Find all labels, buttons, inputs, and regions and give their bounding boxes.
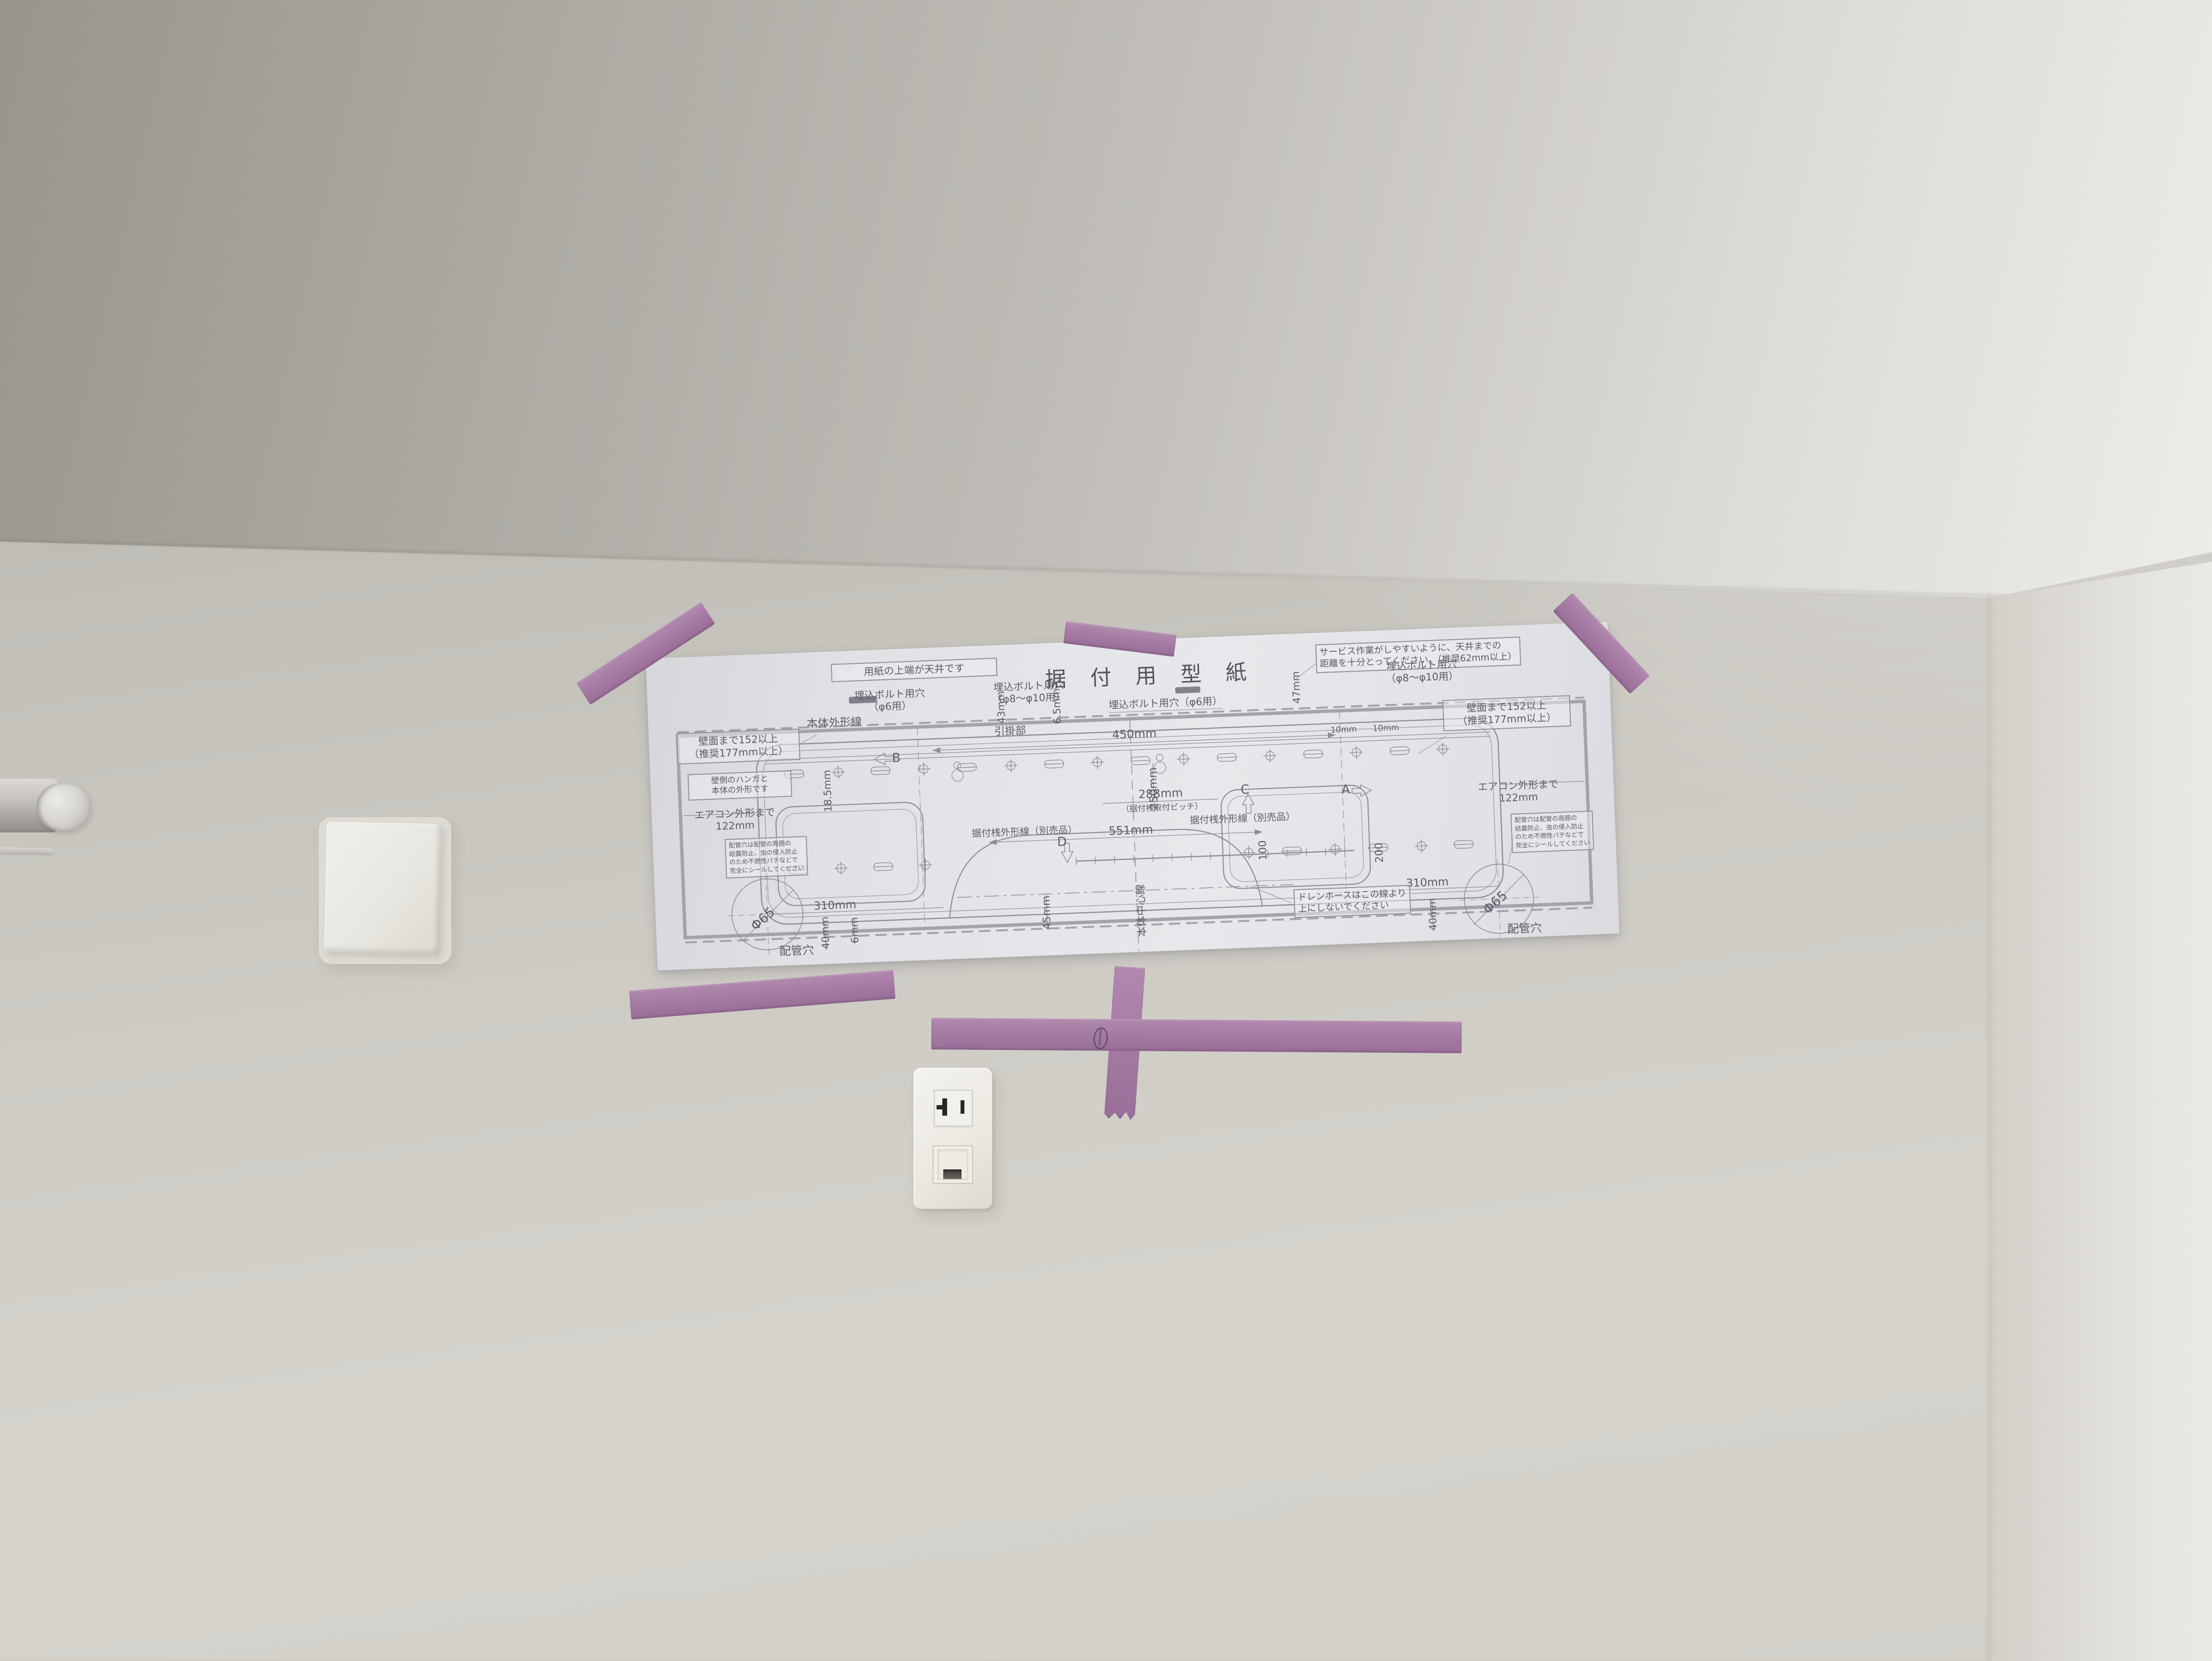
- mark-d: D: [1057, 835, 1067, 850]
- dim-45mm: 45mm: [1040, 886, 1054, 939]
- dim-43mm: 43mm: [994, 681, 1008, 734]
- bolt-hole-810-right-label: 埋込ボルト用穴 （φ8〜φ10用）: [1369, 658, 1475, 686]
- seal-note-right: 配管穴は配管の周囲の 結露防止、虫の侵入防止 のため不燃性パテなどで 完全にシー…: [1511, 811, 1594, 854]
- curtain-rail-bracket: [0, 847, 54, 855]
- wall-installation-photo: 用紙の上端が天井です 据 付 用 型 紙 サービス作業がしやすいように、天井まで…: [0, 0, 2212, 1659]
- mark-b: B: [892, 751, 901, 766]
- right-side-wall: [1990, 547, 2212, 1661]
- dim-551mm: 551mm: [1108, 823, 1154, 838]
- lan-jack-opening: [943, 1169, 962, 1179]
- wall-clearance-right: 壁面まで152以上 （推奨177mm以上）: [1443, 695, 1571, 731]
- pipe-hole-left: 配管穴: [779, 943, 814, 959]
- dim-10mm-a: 10mm: [1330, 724, 1357, 735]
- dim-18-5mm: 18.5mm: [821, 764, 834, 818]
- mark-a: A: [1341, 782, 1350, 798]
- power-socket: [934, 1090, 973, 1127]
- wall-vent-cover: [324, 822, 442, 955]
- dim-6-5mm: 6.5mm: [1050, 680, 1063, 733]
- dim-10mm-b: 10mm: [1372, 723, 1399, 734]
- wall-clearance-left: 壁面まで152以上 （推奨177mm以上）: [676, 729, 800, 764]
- dim-288mm: 288mm: [1138, 786, 1183, 801]
- wall-corner-line: [1988, 593, 1991, 1661]
- electrical-outlet-plate: [914, 1068, 992, 1209]
- pipe-hole-right: 配管穴: [1507, 921, 1542, 937]
- dim-40mm-right: 40mm: [1426, 888, 1440, 941]
- aircon-outline-left: エアコン外形まで 122mm: [694, 806, 776, 834]
- socket-slot-right: [961, 1100, 964, 1114]
- dim-40mm-left: 40mm: [818, 906, 832, 960]
- dim-450mm: 450mm: [1112, 726, 1157, 742]
- dim-100: 100: [1256, 824, 1270, 877]
- hanger-note: 壁側のハンガと 本体の外形です: [687, 770, 792, 801]
- bolt-hole-6-label: 埋込ボルト用穴 （φ6用）: [849, 687, 931, 714]
- dim-310mm-left: 310mm: [814, 899, 857, 914]
- bolt-hole-810-label: 埋込ボルト用穴 （φ8〜φ10用）: [978, 678, 1080, 706]
- dim-310mm-right: 310mm: [1406, 876, 1449, 891]
- masking-tape-horizontal-cross: [931, 1018, 1462, 1053]
- dim-47mm: 47mm: [1289, 661, 1303, 714]
- dim-200: 200: [1372, 826, 1386, 879]
- curtain-rail-end-cap: [36, 782, 90, 831]
- wall-vent-base: [319, 817, 451, 964]
- body-outline-label: 本体外形線: [806, 716, 862, 731]
- mark-c: C: [1240, 782, 1250, 798]
- aircon-outline-right: エアコン外形まで 122mm: [1475, 778, 1562, 806]
- installation-template-paper: 用紙の上端が天井です 据 付 用 型 紙 サービス作業がしやすいように、天井まで…: [646, 622, 1619, 970]
- body-center-line-label: 本体中心線: [1131, 877, 1149, 944]
- socket-slot-left: [942, 1098, 947, 1116]
- seal-note-left: 配管穴は配管の周囲の 結露防止、虫の侵入防止 のため不燃性パテなどで 完全にシー…: [725, 836, 808, 879]
- ceiling-surface: [0, 0, 2212, 614]
- lan-jack-module: [933, 1145, 973, 1184]
- drain-hose-note: ドレンホースはこの線より 上にしないでください: [1293, 885, 1411, 918]
